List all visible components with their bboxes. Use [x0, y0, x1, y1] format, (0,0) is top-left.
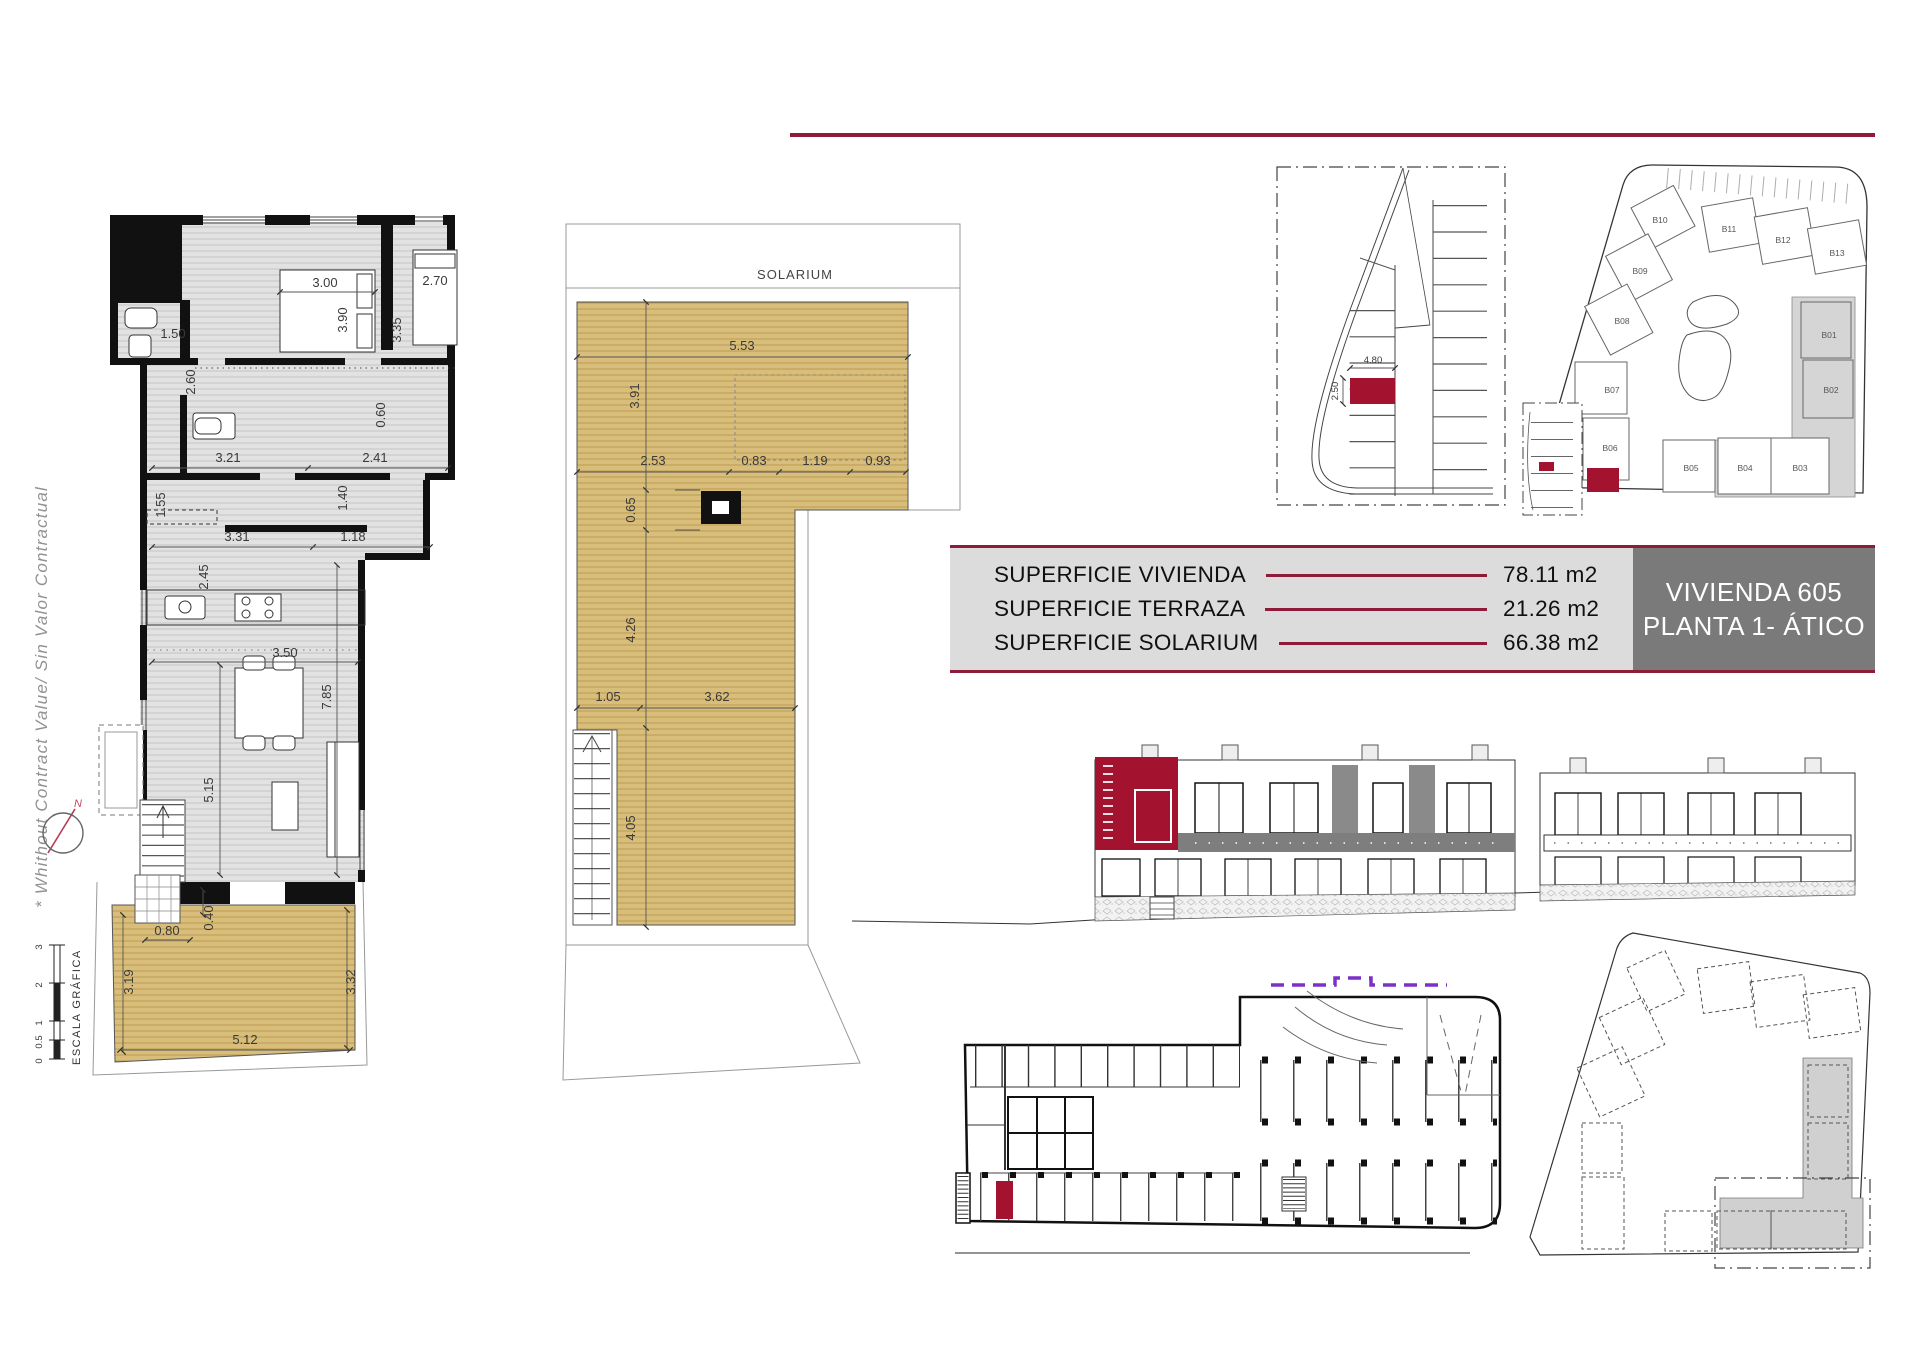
dim-bath-height: 2.60 — [183, 369, 198, 394]
dim-bed1-width: 3.00 — [312, 275, 337, 290]
area-label: SUPERFICIE VIVIENDA — [994, 562, 1246, 588]
highlighted-unit — [1587, 468, 1619, 492]
area-value: 78.11 m2 — [1503, 562, 1615, 588]
site-plan-top: B10 B11 B12 B13 B09 B08 B07 B06 B05 B04 … — [1515, 150, 1905, 520]
dim-sol-chimney: 0.65 — [623, 497, 638, 522]
dim-terrace-left: 3.19 — [121, 969, 136, 994]
scale-ruler — [49, 945, 65, 1059]
title-block: SUPERFICIE VIVIENDA 78.11 m2 SUPERFICIE … — [950, 545, 1875, 673]
dim-closet: 0.60 — [373, 402, 388, 427]
dim-bed2-height: 3.35 — [389, 317, 404, 342]
dim-stall-width: 4.80 — [1364, 355, 1383, 366]
dim-bed2-width: 2.70 — [422, 273, 447, 288]
highlighted-garage-stall — [996, 1181, 1013, 1219]
dim-sol-seg2: 0.83 — [741, 453, 766, 468]
compass-circle — [43, 813, 83, 853]
north-label: N — [74, 798, 82, 810]
terrace-planter — [135, 875, 180, 923]
dim-sol-seg4: 0.93 — [865, 453, 890, 468]
area-label: SUPERFICIE TERRAZA — [994, 596, 1245, 622]
leader-line — [1279, 642, 1488, 645]
elevation-drawing — [850, 735, 1860, 925]
block-label-b11: B11 — [1722, 224, 1737, 234]
solarium-label: SOLARIUM — [757, 267, 833, 282]
elevation-left-building — [1095, 745, 1515, 921]
dim-sol-top-height: 3.91 — [627, 383, 642, 408]
parking-inset — [1523, 403, 1582, 515]
dim-bath-width: 1.50 — [160, 326, 185, 341]
highlighted-elevation-unit — [1095, 757, 1178, 850]
dim-hall-right: 2.41 — [362, 450, 387, 465]
dim-store-height: 1.55 — [153, 492, 168, 517]
dim-sol-low-width: 3.62 — [704, 689, 729, 704]
area-value: 66.38 m2 — [1503, 630, 1615, 656]
dim-sol-seg1: 2.53 — [640, 453, 665, 468]
stairs — [140, 800, 185, 882]
scale-tick-3: 3 — [34, 944, 45, 949]
dim-terrace-in: 0.80 — [154, 923, 179, 938]
solarium-stairs — [573, 730, 612, 925]
dim-sol-mid-height: 4.26 — [623, 617, 638, 642]
dim-stall-height: 2.50 — [1330, 382, 1341, 401]
dim-sol-low-left: 1.05 — [595, 689, 620, 704]
chimney — [701, 491, 741, 524]
table-row: SUPERFICIE SOLARIUM 66.38 m2 — [994, 630, 1615, 656]
block-label-b02: B02 — [1823, 385, 1838, 395]
parking-road — [1312, 168, 1493, 494]
area-value: 21.26 m2 — [1503, 596, 1615, 622]
apartment-floor-plan: 3.00 3.90 2.70 3.35 1.50 2.60 0.60 3.21 … — [85, 170, 460, 1110]
site-plan-bottom — [1520, 925, 1910, 1305]
dim-stair-height: 5.15 — [201, 777, 216, 802]
leader-line — [1265, 608, 1487, 611]
unit-badge: VIVIENDA 605 PLANTA 1- ÁTICO — [1633, 548, 1875, 670]
block-label-b13: B13 — [1829, 248, 1844, 258]
dim-living-height: 7.85 — [319, 684, 334, 709]
dim-sol-seg3: 1.19 — [802, 453, 827, 468]
block-label-b07: B07 — [1604, 385, 1619, 395]
top-rule — [790, 133, 1875, 137]
block-label-b01: B01 — [1821, 330, 1836, 340]
scale-label: ESCALA GRÁFICA — [70, 949, 83, 1065]
dim-pass-width: 1.18 — [340, 529, 365, 544]
unit-name: VIVIENDA 605 — [1666, 575, 1843, 609]
scale-tick-0: 0 — [34, 1058, 45, 1063]
dim-hall-left: 3.21 — [215, 450, 240, 465]
block-label-b05: B05 — [1683, 463, 1698, 473]
dim-bed1-height: 3.90 — [335, 307, 350, 332]
highlighted-parking-stall — [1350, 378, 1395, 404]
garage-plan — [775, 945, 1525, 1275]
elevation-right-building — [1540, 758, 1855, 901]
table-row: SUPERFICIE VIVIENDA 78.11 m2 — [994, 562, 1615, 588]
dim-sol-top-width: 5.53 — [729, 338, 754, 353]
table-row: SUPERFICIE TERRAZA 21.26 m2 — [994, 596, 1615, 622]
scale-bar: 3 2 1 0.5 0 ESCALA GRÁFICA — [28, 935, 108, 1075]
dim-kitchen-width: 3.31 — [224, 529, 249, 544]
block-label-b12: B12 — [1775, 235, 1790, 245]
block-label-b09: B09 — [1632, 266, 1647, 276]
block-label-b04: B04 — [1737, 463, 1752, 473]
dim-terrace-right: 3.32 — [343, 969, 358, 994]
block-label-b03: B03 — [1792, 463, 1807, 473]
balcony-band — [1178, 833, 1515, 852]
parking-plan: 4.80 2.50 — [1265, 160, 1515, 515]
area-label: SUPERFICIE SOLARIUM — [994, 630, 1259, 656]
ramp-dashed-line — [1271, 978, 1447, 985]
scale-tick-1: 1 — [34, 1020, 45, 1025]
scale-tick-2: 2 — [34, 982, 45, 987]
north-arrow: N — [36, 793, 96, 865]
dim-terrace-step: 0.40 — [201, 905, 216, 930]
dim-terrace-width: 5.12 — [232, 1032, 257, 1047]
leader-line — [1266, 574, 1487, 577]
areas-table: SUPERFICIE VIVIENDA 78.11 m2 SUPERFICIE … — [950, 548, 1633, 670]
plan-sheet: * Whithout Contract Value/ Sin Valor Con… — [0, 0, 1920, 1356]
block-label-b06: B06 — [1602, 443, 1617, 453]
dim-kitchen-height: 2.45 — [196, 564, 211, 589]
dim-hall-height: 1.40 — [335, 485, 350, 510]
scale-tick-05: 0.5 — [34, 1035, 45, 1048]
block-label-b10: B10 — [1652, 215, 1667, 225]
dim-living-width: 3.50 — [272, 645, 297, 660]
unit-floor: PLANTA 1- ÁTICO — [1643, 609, 1865, 643]
block-label-b08: B08 — [1614, 316, 1629, 326]
dim-sol-low-height: 4.05 — [623, 815, 638, 840]
